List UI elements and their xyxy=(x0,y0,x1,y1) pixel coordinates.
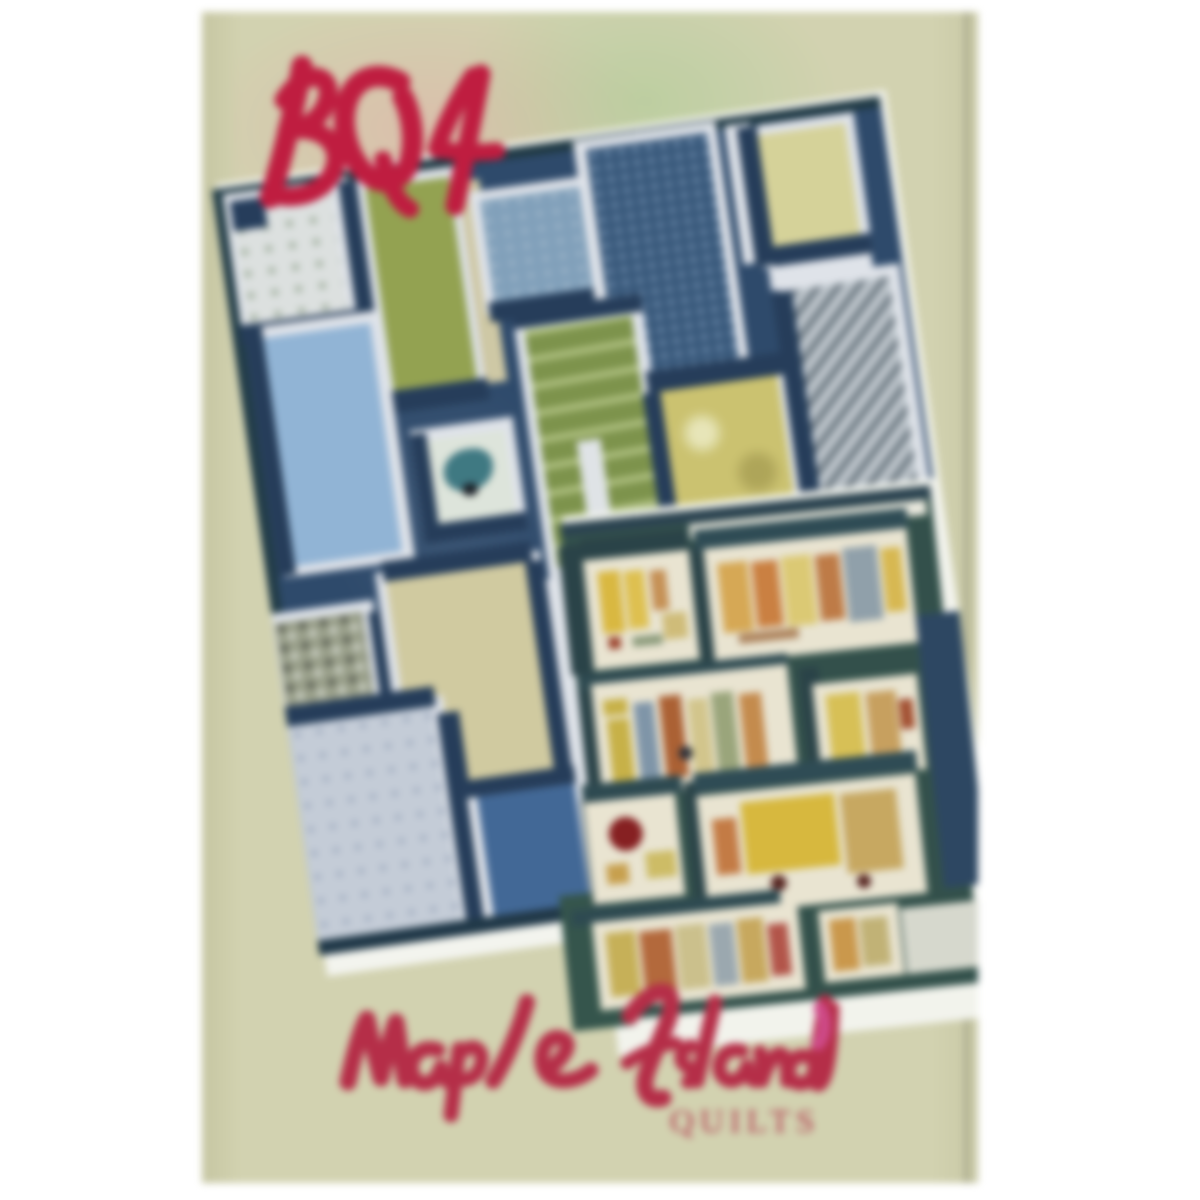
svg-text:QUILTS: QUILTS xyxy=(670,1104,820,1140)
